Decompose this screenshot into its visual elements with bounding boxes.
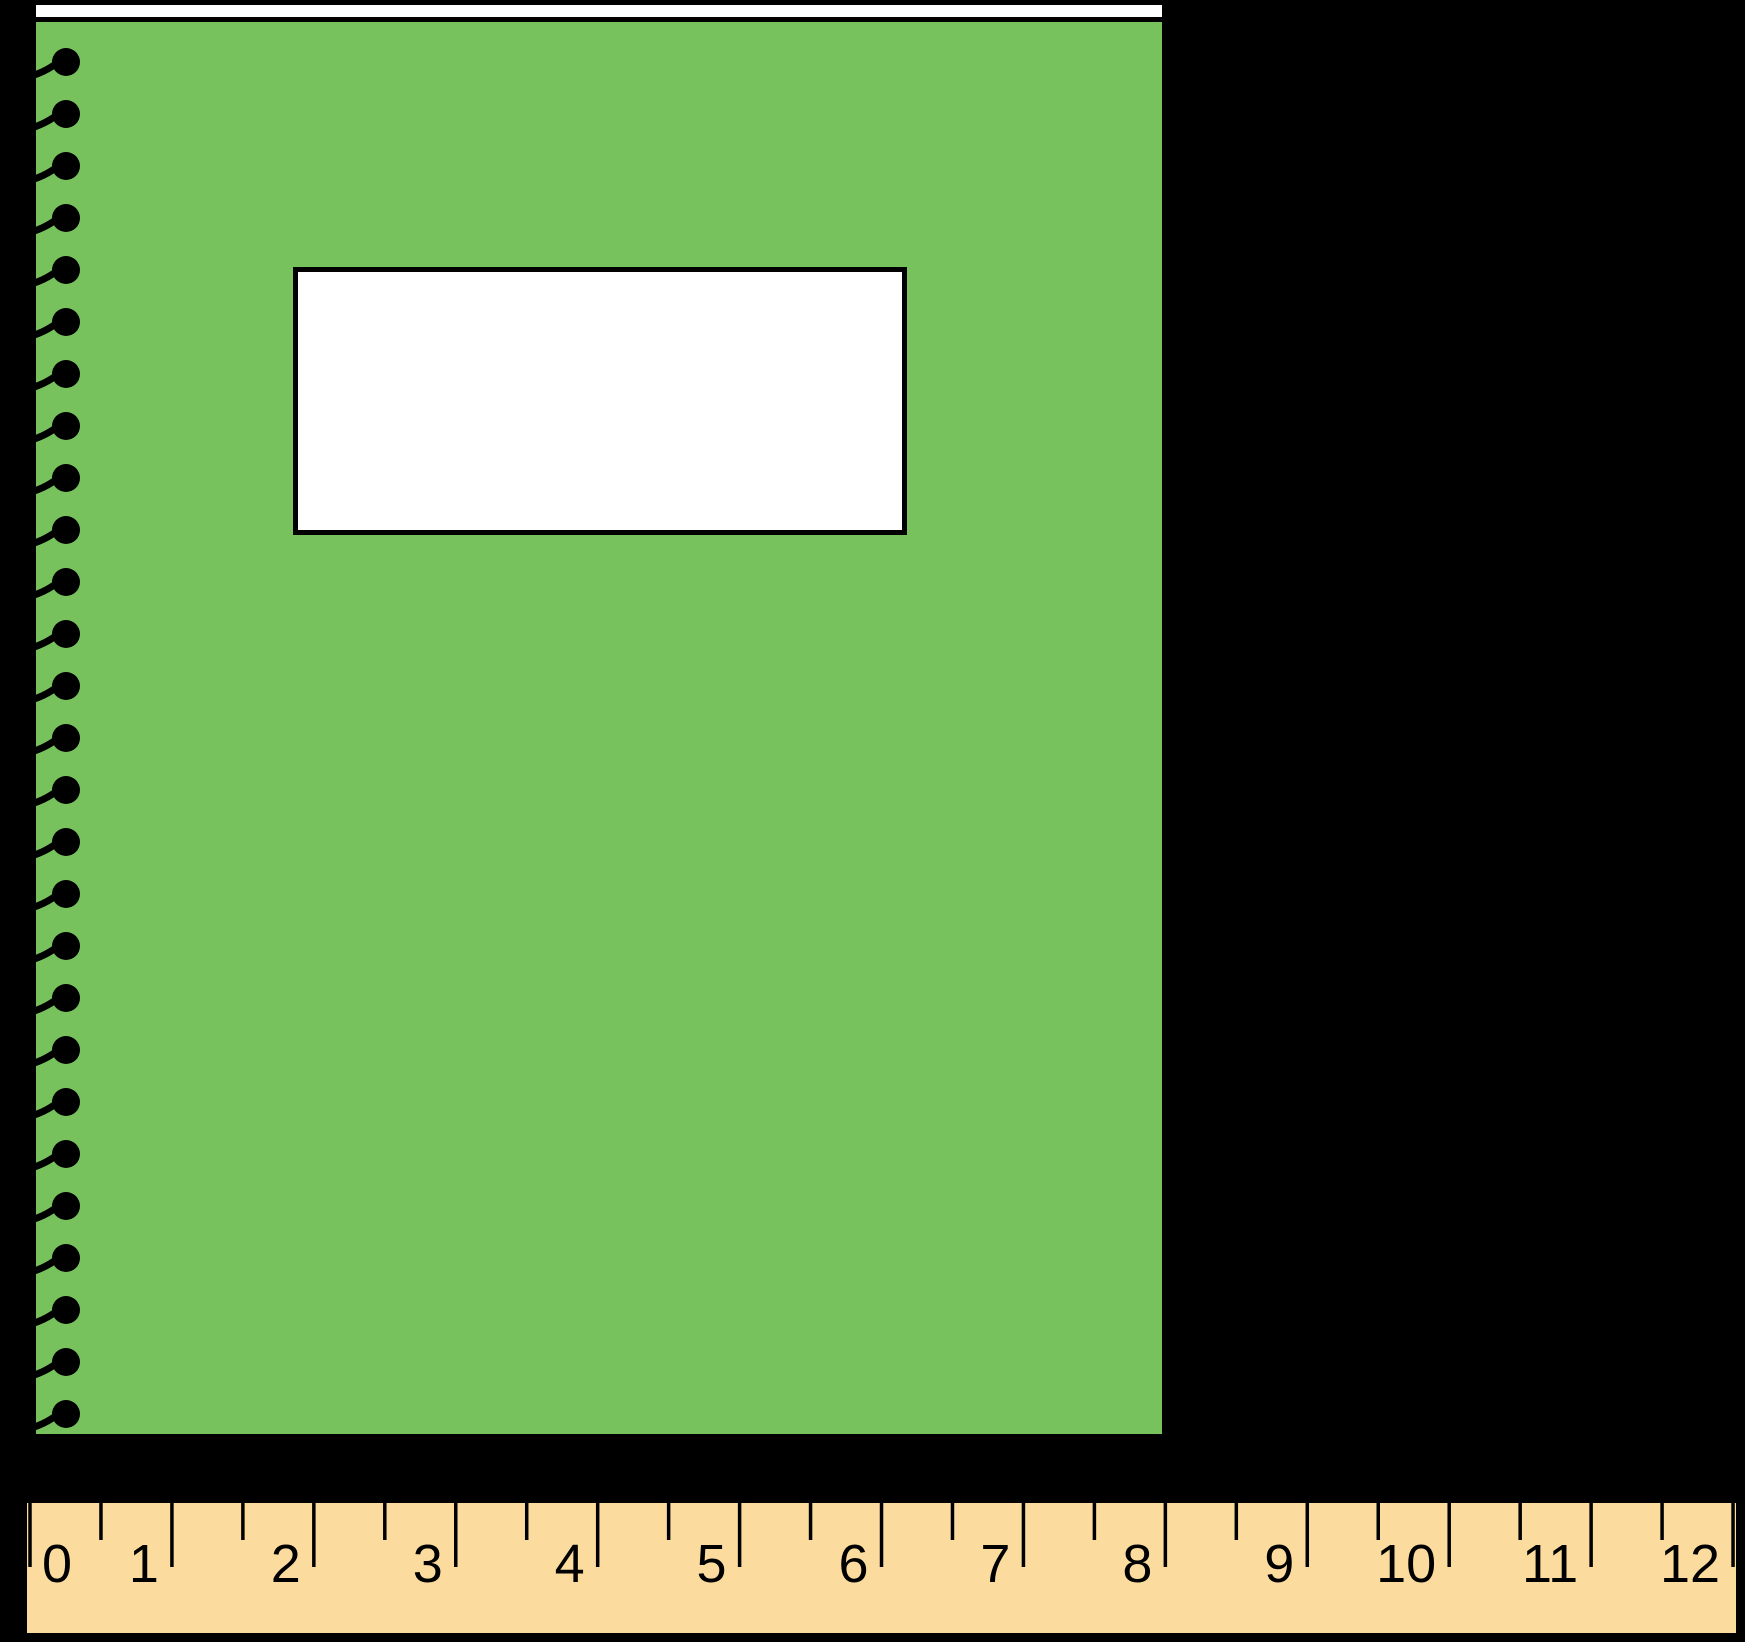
notebook-cover	[33, 19, 1165, 1437]
notebook-label	[293, 267, 907, 535]
scene: 0123456789101112	[0, 0, 1745, 1642]
notebook-binding-strip	[33, 2, 1165, 20]
ruler	[22, 1498, 1741, 1638]
